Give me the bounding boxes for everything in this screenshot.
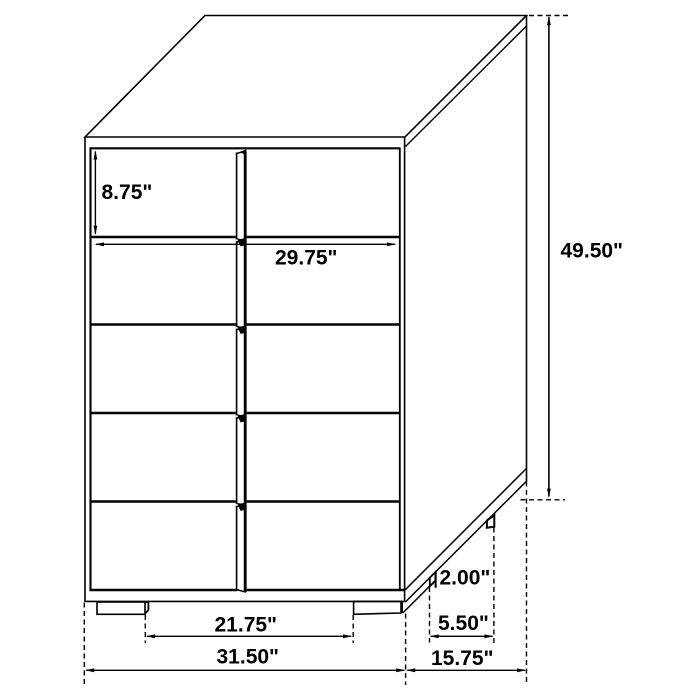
svg-text:2.00": 2.00" [440,567,491,590]
svg-text:29.75": 29.75" [275,247,338,270]
svg-text:15.75": 15.75" [431,647,494,670]
svg-text:31.50": 31.50" [217,646,280,669]
svg-text:8.75": 8.75" [102,181,153,204]
svg-text:5.50": 5.50" [438,612,489,635]
svg-text:49.50": 49.50" [561,240,624,263]
svg-text:21.75": 21.75" [215,614,278,637]
